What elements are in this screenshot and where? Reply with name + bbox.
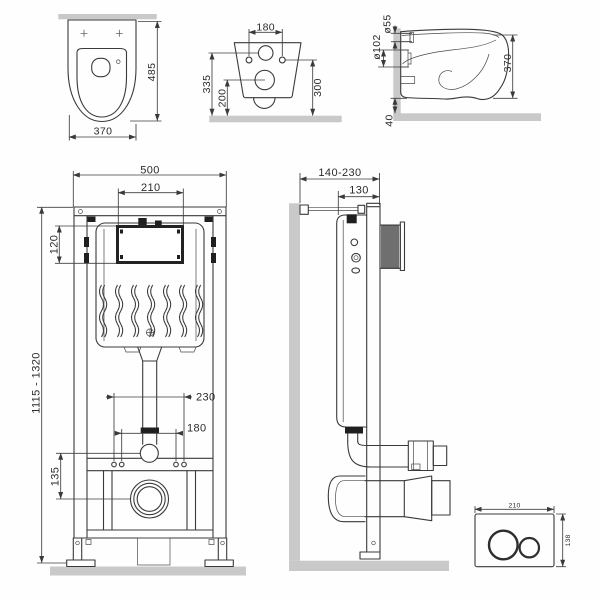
toilet-side-view: ø55 ø102 40 370 — [365, 0, 557, 150]
toilet-back-view: 180 335 200 300 — [195, 5, 365, 147]
dim-opening-height-120: 120 — [49, 226, 117, 263]
flush-sleeve — [380, 222, 405, 271]
top-screw-left — [79, 210, 83, 214]
dim-label-toilet-width: 370 — [94, 126, 113, 138]
top-fitting — [347, 214, 357, 223]
outlet-step — [408, 53, 411, 64]
drain-socket-outer — [131, 480, 169, 518]
corner-bracket-left — [88, 217, 96, 223]
flush-bend-side — [345, 427, 447, 471]
dim-label-outlet-diameter: ø102 — [371, 34, 383, 60]
wall-strip — [58, 14, 156, 19]
dim-label-height-range: 1115 - 1320 — [31, 352, 43, 413]
frame-front-view: 500 210 120 1115 - 1320 230 — [20, 165, 270, 595]
port-upper — [351, 239, 358, 246]
bowl-opening — [92, 58, 110, 76]
dim-label-outlet-to-wall: 200 — [217, 89, 229, 108]
fixing-hole-inner-right — [174, 462, 179, 467]
corner-bracket-right — [205, 217, 213, 223]
bolt-hole-left — [246, 57, 252, 63]
fixing-hole-inner-left — [119, 462, 124, 467]
flush-button-large — [489, 531, 518, 560]
rim-line — [402, 33, 499, 38]
outlet-pipe — [401, 50, 408, 67]
dim-label-frame-width: 500 — [140, 165, 160, 177]
pipe-stub — [433, 446, 446, 466]
fixing-hole-outer-right — [182, 462, 187, 467]
drain-cone — [404, 476, 431, 521]
pipe-clip — [412, 464, 420, 470]
dim-width-370: 370 — [69, 115, 136, 141]
drain-end — [432, 481, 450, 515]
toilet-back-outline — [234, 43, 301, 109]
foot-right — [205, 560, 233, 567]
inlet-hole — [258, 46, 273, 61]
wall-bracket — [300, 205, 365, 214]
dim-outlet-drop-135: 135 — [50, 453, 141, 499]
floor-strip — [289, 561, 449, 571]
pipe-flange — [345, 427, 363, 434]
bowl-line-upper — [403, 40, 497, 64]
dim-label-opening-height: 120 — [49, 235, 61, 255]
bowl-line-lower — [439, 54, 489, 89]
inlet-flange — [410, 32, 414, 42]
dim-label-plate-height: 138 — [565, 535, 572, 547]
port-lower — [352, 253, 361, 262]
dim-plate-width: 210 — [475, 503, 554, 514]
dim-height-485: 485 — [130, 22, 162, 122]
floor-strip — [393, 113, 541, 121]
toilet-top-view: 485 370 — [30, 5, 195, 147]
dim-label-inlet-to-wall: 335 — [201, 75, 213, 94]
plate-outline — [475, 514, 554, 567]
flush-connector — [140, 444, 158, 462]
dim-floor-gap-40: 40 — [384, 98, 408, 126]
fixing-hole-outer-left — [112, 462, 117, 467]
foot — [360, 552, 380, 559]
dim-opening-width-210: 210 — [118, 182, 183, 226]
bracket-anchor — [300, 205, 308, 214]
dim-label-holes-to-wall: 300 — [312, 78, 324, 97]
seat-button — [117, 60, 121, 64]
dim-label-fixing-outer: 230 — [196, 392, 216, 404]
flush-button-small — [520, 538, 539, 557]
dim-height-range: 1115 - 1320 — [31, 207, 74, 563]
flush-plate-view: 210 138 — [460, 495, 595, 590]
drain-bend-side — [328, 476, 450, 522]
dim-label-side-height: 370 — [502, 54, 514, 73]
cistern-side — [337, 214, 367, 427]
dim-label-fixing-inner: 180 — [187, 423, 207, 435]
dim-label-hole-spacing: 180 — [256, 22, 275, 34]
technical-drawing-canvas: 485 370 180 335 — [0, 0, 600, 600]
floor-strip — [50, 567, 246, 576]
toilet-side-outline — [401, 29, 509, 99]
dim-hole-spacing-180: 180 — [249, 22, 282, 57]
drain-template — [138, 538, 171, 565]
dim-label-inlet-diameter: ø55 — [382, 14, 394, 33]
dim-outlet-dia: ø102 — [371, 34, 409, 67]
service-opening — [118, 227, 183, 263]
flush-bell — [138, 347, 162, 361]
bracket-nut — [358, 205, 365, 213]
dim-fixing-inner-180: 180 — [115, 423, 207, 462]
dim-300: 300 — [285, 60, 324, 116]
frame-rail-side — [360, 203, 380, 559]
dim-label-wall-distance: 140-230 — [318, 167, 361, 179]
dim-height-370: 370 — [493, 35, 518, 98]
outlet-arc — [254, 98, 275, 109]
fixings-and-drain — [112, 462, 187, 565]
port-oval — [352, 268, 360, 273]
dim-label-frame-depth: 130 — [349, 185, 369, 197]
dim-label-plate-width: 210 — [509, 503, 521, 510]
sleeve-end-plate — [400, 222, 404, 271]
dim-label-outlet-drop: 135 — [50, 467, 62, 487]
mounting-boss — [401, 77, 415, 84]
frame-legs — [67, 538, 234, 567]
sleeve-ribs — [382, 225, 398, 268]
flush-pipe — [138, 347, 162, 462]
top-screw-right — [218, 210, 222, 214]
bolt-hole-right — [279, 57, 285, 63]
frame-side-view: 140-230 130 — [283, 165, 460, 595]
dim-label-toilet-height: 485 — [146, 63, 158, 82]
dim-label-opening-width: 210 — [141, 182, 161, 194]
wall-strip — [289, 203, 300, 560]
pipe-flange — [141, 428, 159, 434]
wall-strip — [209, 116, 341, 123]
hinge-cross-marks — [81, 30, 123, 37]
toilet-outline — [68, 20, 136, 122]
inlet-pipe — [401, 33, 410, 41]
dim-label-floor-gap: 40 — [384, 114, 396, 126]
foot-left — [67, 560, 95, 567]
dim-plate-height: 138 — [556, 514, 572, 567]
